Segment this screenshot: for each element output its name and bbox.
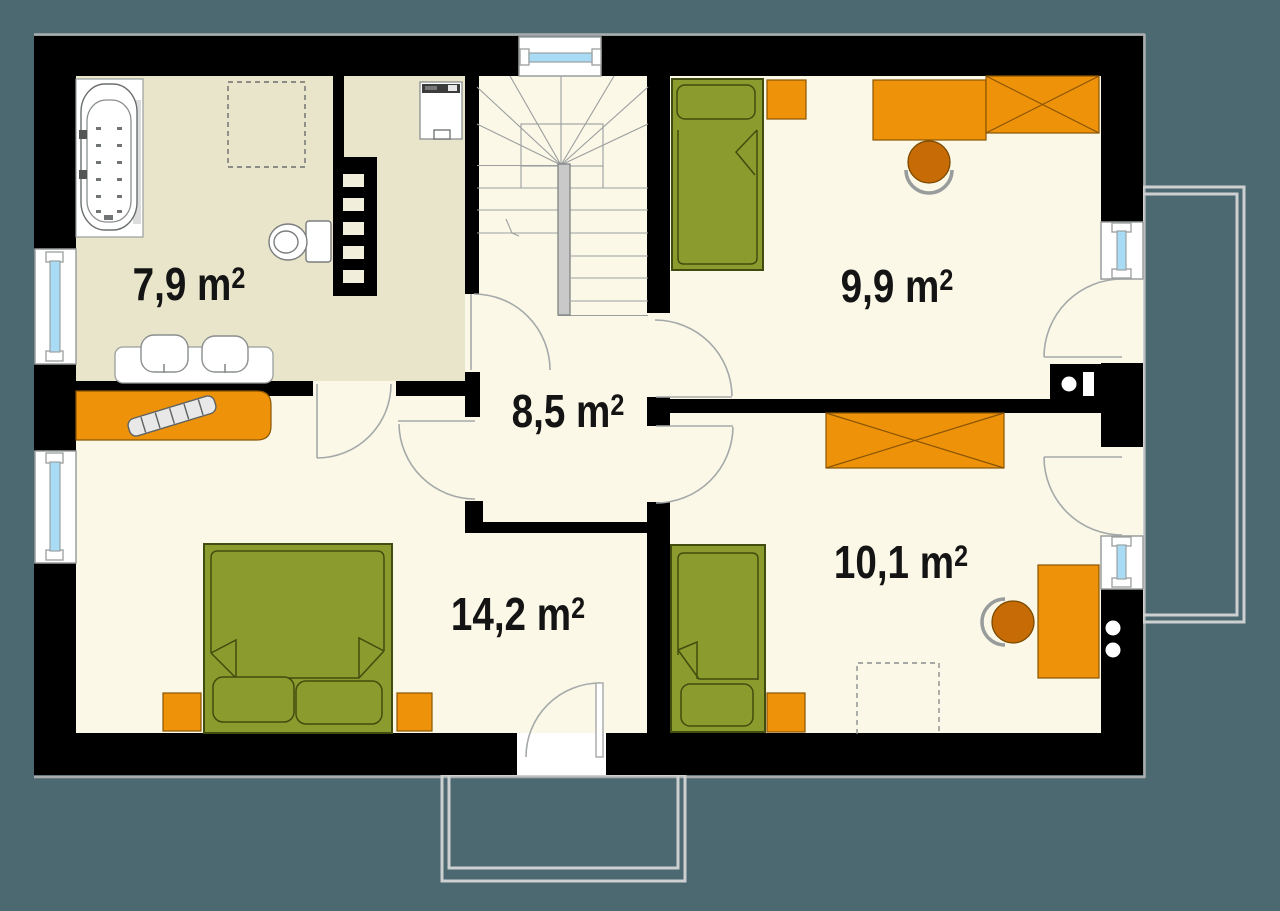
svg-text:7,9 m2: 7,9 m2 [133, 259, 246, 310]
svg-text:8,5 m2: 8,5 m2 [512, 386, 625, 437]
svg-text:10,1 m2: 10,1 m2 [834, 537, 968, 588]
svg-text:14,2 m2: 14,2 m2 [451, 589, 585, 640]
svg-text:9,9 m2: 9,9 m2 [841, 261, 954, 312]
